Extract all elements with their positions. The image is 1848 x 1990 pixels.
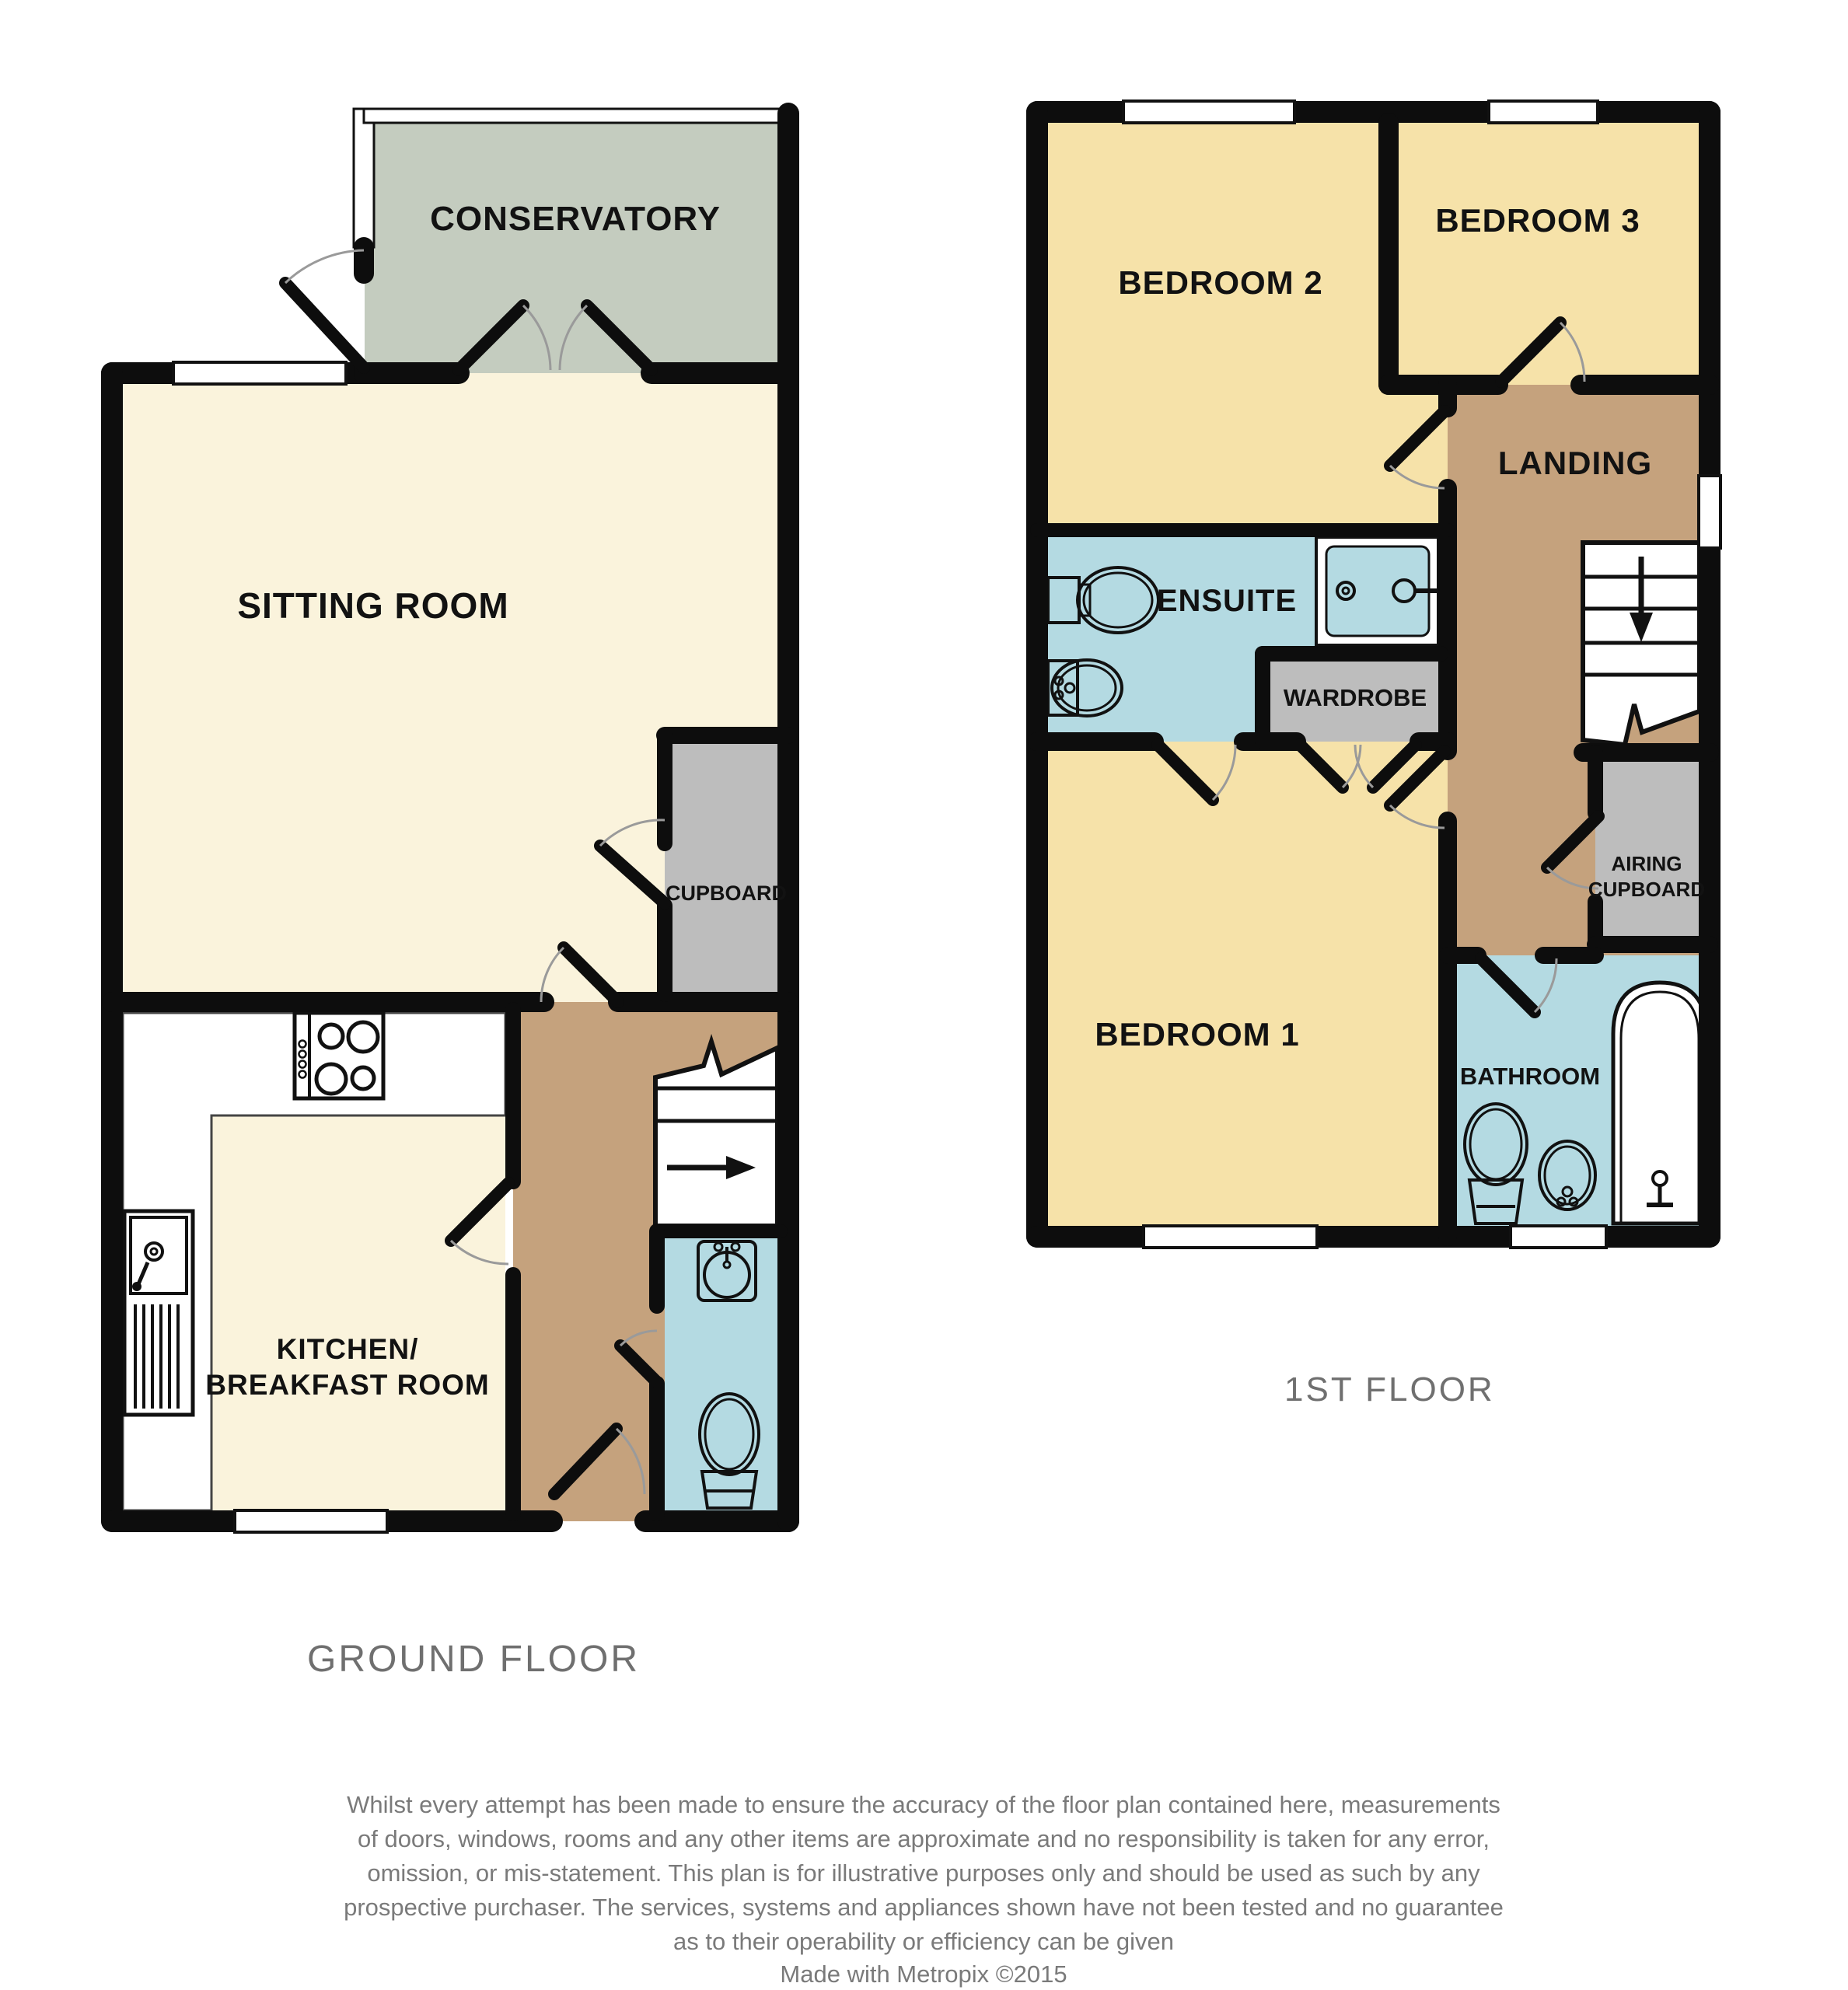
window	[1511, 1226, 1606, 1248]
conservatory-top-glass	[364, 109, 788, 123]
bedroom1-label: BEDROOM 1	[1095, 1016, 1299, 1053]
shower-icon	[1316, 537, 1438, 645]
kitchen-label-line1: KITCHEN/	[277, 1333, 419, 1365]
conservatory-side-glass	[354, 109, 374, 247]
bathroom-label: BATHROOM	[1460, 1063, 1600, 1090]
sitting-room-label: SITTING ROOM	[237, 585, 508, 626]
airing-cupboard-label-line2: CUPBOARD	[1588, 878, 1705, 901]
airing-cupboard-floor	[1595, 752, 1710, 944]
landing-label: LANDING	[1498, 445, 1652, 481]
window	[1489, 101, 1598, 123]
window	[1699, 476, 1720, 548]
wc-floor	[665, 1231, 788, 1521]
bedroom1-floor	[1048, 742, 1448, 1237]
credit-line: Made with Metropix ©2015	[780, 1960, 1067, 1988]
ground-floor-caption: GROUND FLOOR	[307, 1639, 640, 1680]
kitchen-label-line2: BREAKFAST ROOM	[205, 1369, 490, 1401]
hob-icon	[295, 1013, 383, 1098]
disclaimer-block: Whilst every attempt has been made to en…	[344, 1791, 1504, 1988]
conservatory-floor	[365, 118, 788, 373]
window	[1144, 1226, 1317, 1248]
bedroom3-label: BEDROOM 3	[1435, 202, 1640, 239]
floorplan-first: BEDROOM 2 BEDROOM 3 LANDING ENSUITE WARD…	[1037, 101, 1720, 1248]
bedroom2-label: BEDROOM 2	[1118, 264, 1322, 301]
bath-icon	[1613, 983, 1707, 1224]
disclaimer-line: Whilst every attempt has been made to en…	[347, 1791, 1500, 1818]
first-floor-caption: 1ST FLOOR	[1284, 1370, 1495, 1409]
airing-cupboard-label-line1: AIRING	[1612, 852, 1682, 875]
kitchen-sink-icon	[124, 1211, 193, 1415]
floorplan-page: CONSERVATORY SITTING ROOM CUPBOARD KITCH…	[0, 0, 1848, 1990]
kitchen-floor	[211, 1115, 505, 1510]
disclaimer-line: prospective purchaser. The services, sys…	[344, 1894, 1504, 1921]
window	[173, 362, 346, 384]
disclaimer-line: omission, or mis-statement. This plan is…	[367, 1859, 1480, 1887]
conservatory-label: CONSERVATORY	[430, 200, 721, 238]
floorplan-canvas: CONSERVATORY SITTING ROOM CUPBOARD KITCH…	[0, 0, 1848, 1990]
floorplan-ground: CONSERVATORY SITTING ROOM CUPBOARD KITCH…	[112, 109, 788, 1532]
window	[1123, 101, 1294, 123]
stairs-first	[1583, 543, 1700, 745]
disclaimer-line: of doors, windows, rooms and any other i…	[358, 1825, 1490, 1852]
window	[235, 1510, 387, 1532]
cupboard-floor	[665, 735, 788, 1002]
ensuite-label: ENSUITE	[1157, 584, 1297, 618]
disclaimer-line: as to their operability or efficiency ca…	[673, 1928, 1174, 1955]
bedroom3-floor	[1389, 123, 1710, 385]
wardrobe-label: WARDROBE	[1284, 684, 1427, 711]
conservatory-exterior-door	[285, 283, 364, 368]
cupboard-label: CUPBOARD	[665, 882, 787, 905]
